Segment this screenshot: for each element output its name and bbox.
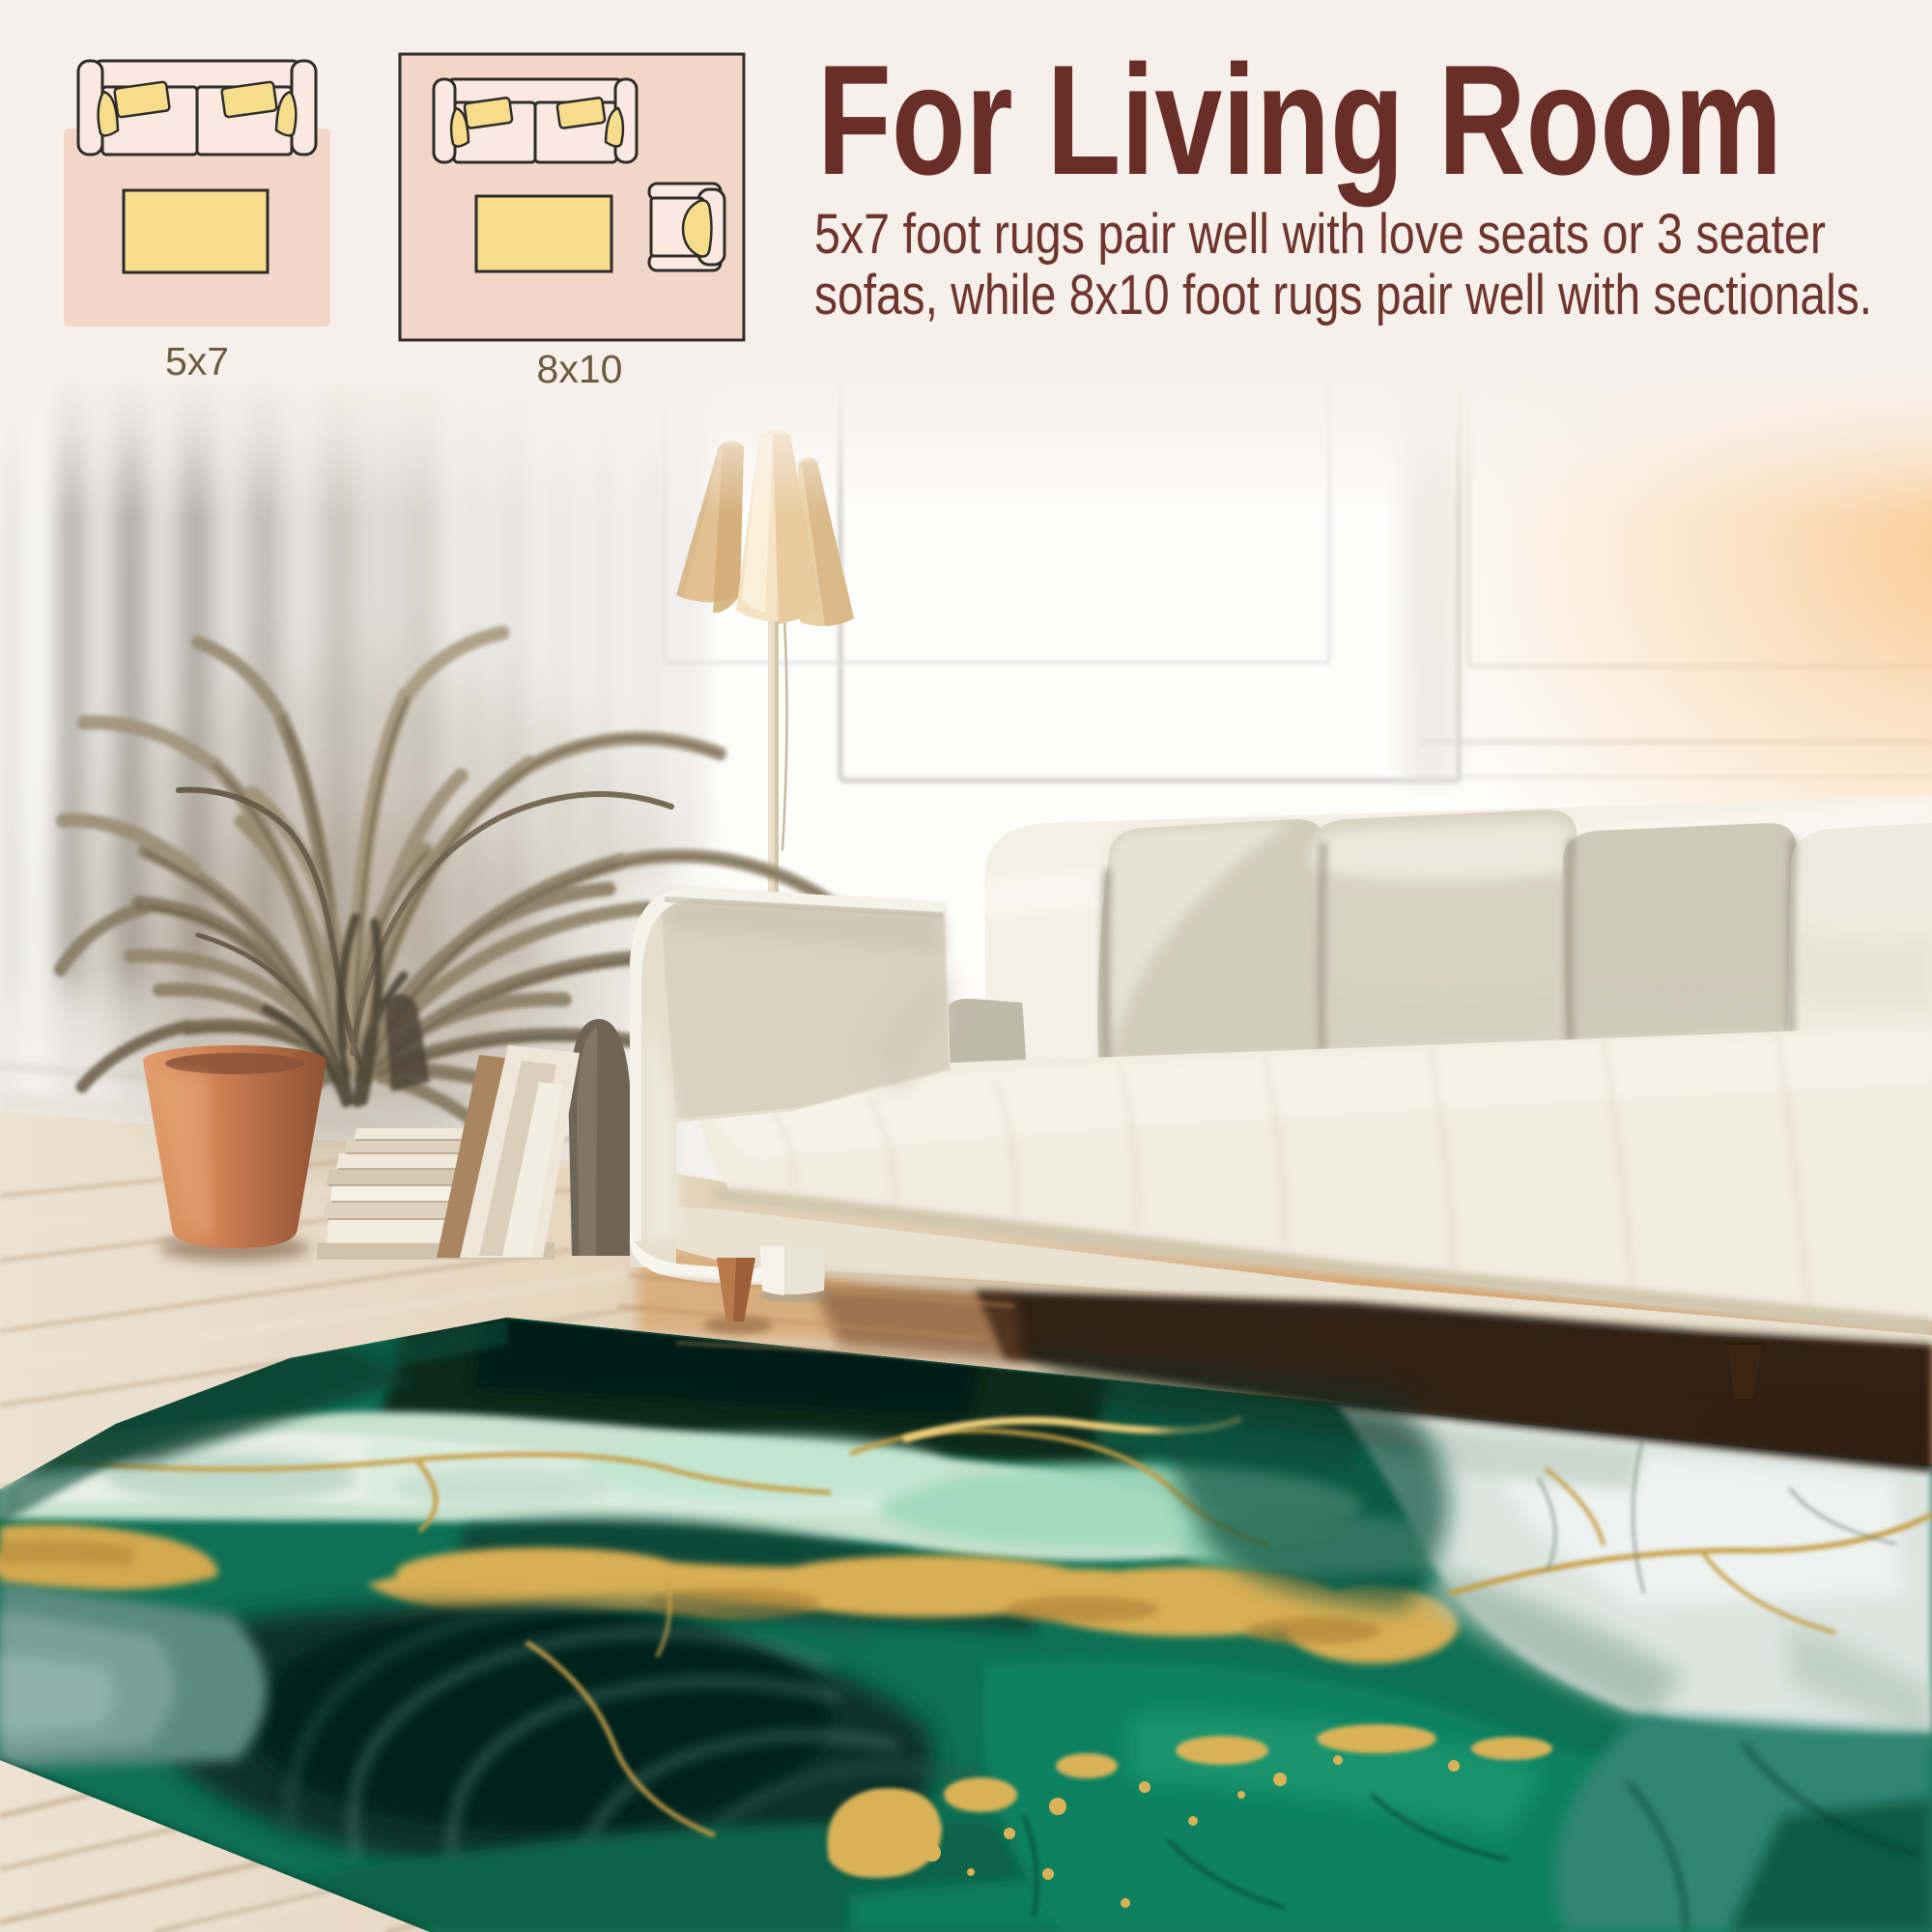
svg-text:sofas, while 8x10 foot rugs pa: sofas, while 8x10 foot rugs pair well wi… bbox=[814, 264, 1872, 327]
svg-text:For Living Room: For Living Room bbox=[817, 33, 1782, 208]
svg-text:5x7: 5x7 bbox=[165, 339, 229, 384]
svg-text:5x7 foot rugs pair well with l: 5x7 foot rugs pair well with love seats … bbox=[814, 203, 1826, 266]
svg-text:8x10: 8x10 bbox=[537, 347, 623, 391]
